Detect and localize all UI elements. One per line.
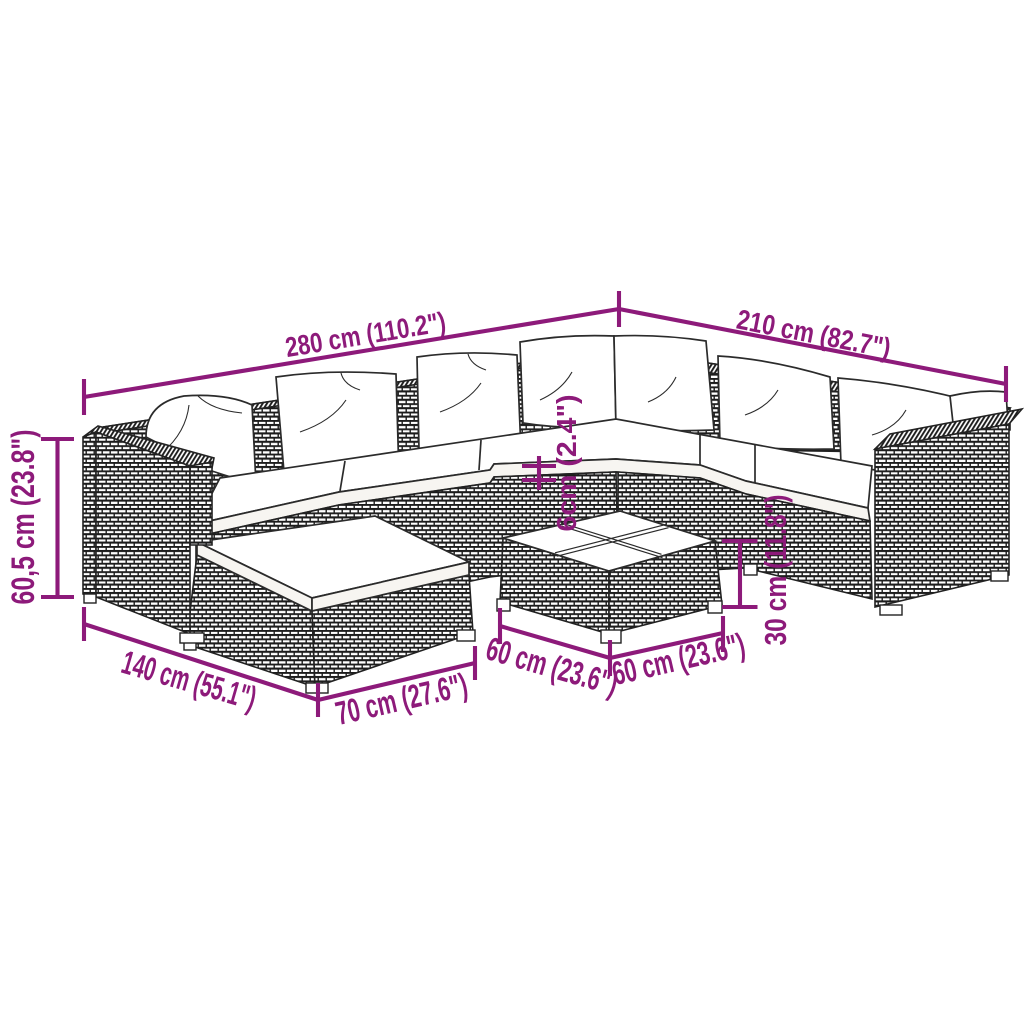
svg-text:60,5 cm (23.8"): 60,5 cm (23.8") xyxy=(5,430,41,605)
svg-text:30 cm (11.8"): 30 cm (11.8") xyxy=(759,495,793,646)
svg-text:6cm (2.4"): 6cm (2.4") xyxy=(551,395,582,532)
